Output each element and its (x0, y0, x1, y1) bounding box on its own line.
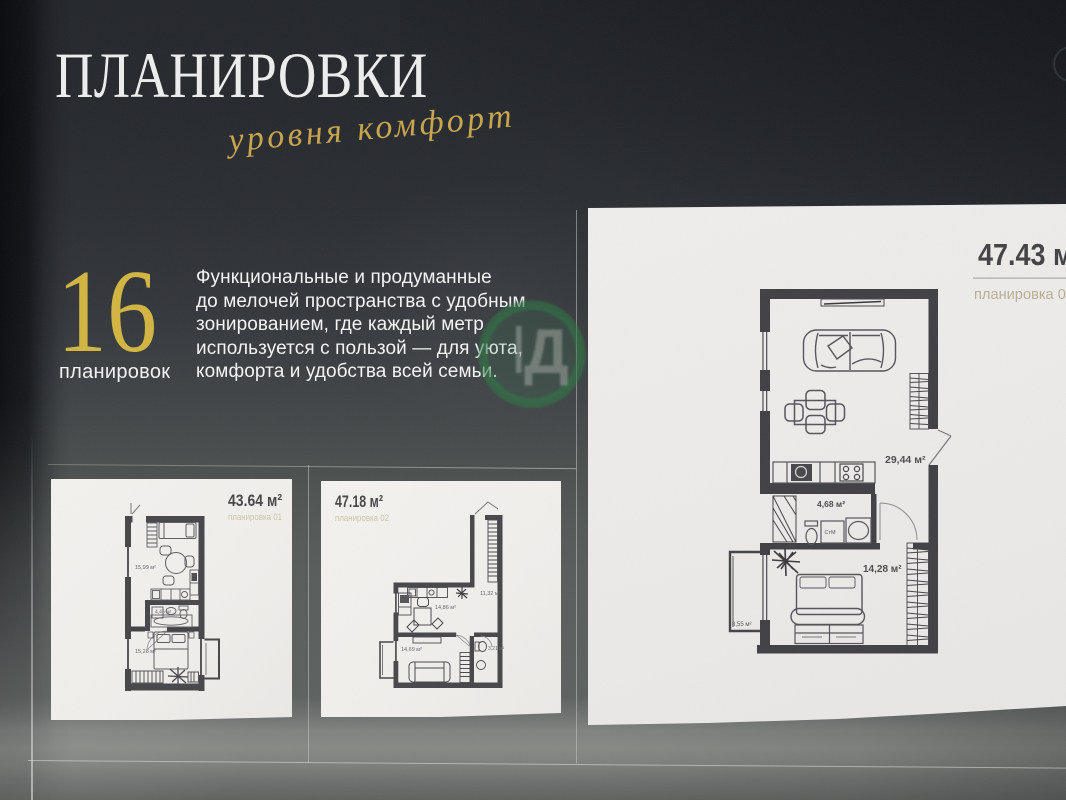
svg-text:СтМ: СтМ (825, 530, 836, 536)
svg-text:47.18 м²: 47.18 м² (335, 493, 383, 511)
svg-text:14,28 м²: 14,28 м² (863, 564, 902, 575)
svg-text:14,86 м²: 14,86 м² (435, 605, 456, 611)
svg-text:4,45 м²: 4,45 м² (155, 610, 172, 616)
svg-text:8,55 м²: 8,55 м² (732, 622, 751, 628)
svg-text:11,32 м²: 11,32 м² (480, 591, 501, 597)
svg-text:планировка 02: планировка 02 (335, 513, 389, 524)
svg-text:планировка 03: планировка 03 (974, 287, 1066, 303)
svg-text:29,44 м²: 29,44 м² (885, 454, 926, 466)
svg-text:4,68 м²: 4,68 м² (817, 499, 845, 509)
svg-text:15,99 м²: 15,99 м² (135, 565, 156, 571)
svg-text:Д: Д (524, 317, 569, 387)
svg-text:планировка 01: планировка 01 (228, 512, 282, 523)
svg-text:15,28 м²: 15,28 м² (135, 649, 156, 655)
svg-text:14,69 м²: 14,69 м² (401, 647, 422, 653)
svg-text:47.43 м²: 47.43 м² (978, 237, 1066, 272)
svg-text:43.64 м²: 43.64 м² (228, 492, 282, 510)
svg-text:3,21 м²: 3,21 м² (488, 646, 505, 652)
